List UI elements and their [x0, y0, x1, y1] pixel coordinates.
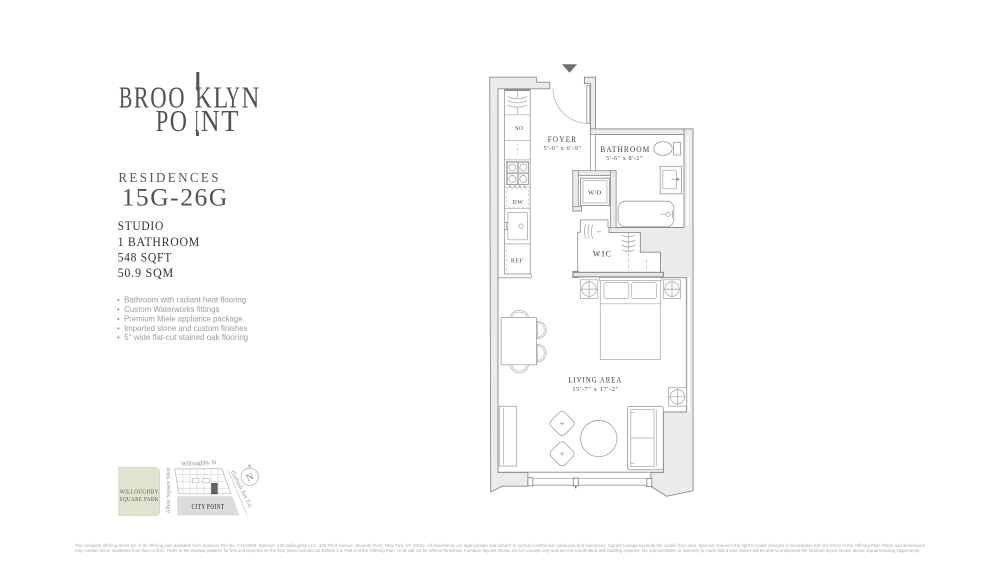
svg-text:R: R [134, 80, 149, 114]
svg-text:BATHROOM: BATHROOM [600, 144, 650, 154]
svg-text:5'-0" x 6'-9": 5'-0" x 6'-9" [544, 146, 582, 152]
svg-text:50.9 SQM: 50.9 SQM [118, 266, 174, 280]
svg-text:SQUARE PARK: SQUARE PARK [120, 496, 159, 503]
svg-text:15G-26G: 15G-26G [122, 184, 229, 211]
svg-text:N: N [201, 105, 220, 139]
svg-text:T: T [221, 105, 238, 139]
svg-text:FOYER: FOYER [548, 134, 578, 144]
svg-text:5'-6" x 8'-2": 5'-6" x 8'-2" [606, 156, 643, 162]
svg-text:548 SQFT: 548 SQFT [118, 250, 172, 264]
svg-text:• 5" wide flat-cut stained oa: • 5" wide flat-cut stained oak flooring [117, 332, 248, 342]
svg-text:RESIDENCES: RESIDENCES [118, 170, 220, 185]
svg-text:DW: DW [512, 200, 523, 206]
svg-text:Albee Square West: Albee Square West [165, 467, 172, 514]
svg-text:REF: REF [511, 259, 524, 265]
svg-text:N: N [242, 81, 260, 115]
svg-text:CITY POINT: CITY POINT [192, 503, 225, 511]
svg-text:LIVING AREA: LIVING AREA [568, 375, 622, 385]
svg-text:15'-7" x 17'-2": 15'-7" x 17'-2" [572, 387, 618, 393]
svg-text:Willoughby St: Willoughby St [181, 459, 217, 468]
svg-text:B: B [119, 80, 132, 114]
svg-text:STUDIO: STUDIO [118, 219, 164, 233]
svg-text:WIC: WIC [593, 249, 613, 258]
svg-text:SO: SO [515, 126, 524, 132]
svg-text:P: P [156, 104, 168, 138]
svg-text:1 BATHROOM: 1 BATHROOM [118, 235, 200, 249]
svg-text:may contain minor variations f: may contain minor variations from floor … [75, 548, 920, 553]
svg-text:W/D: W/D [588, 190, 602, 197]
svg-text:O: O [170, 103, 187, 138]
svg-text:WILLOUGHBY: WILLOUGHBY [120, 489, 159, 496]
